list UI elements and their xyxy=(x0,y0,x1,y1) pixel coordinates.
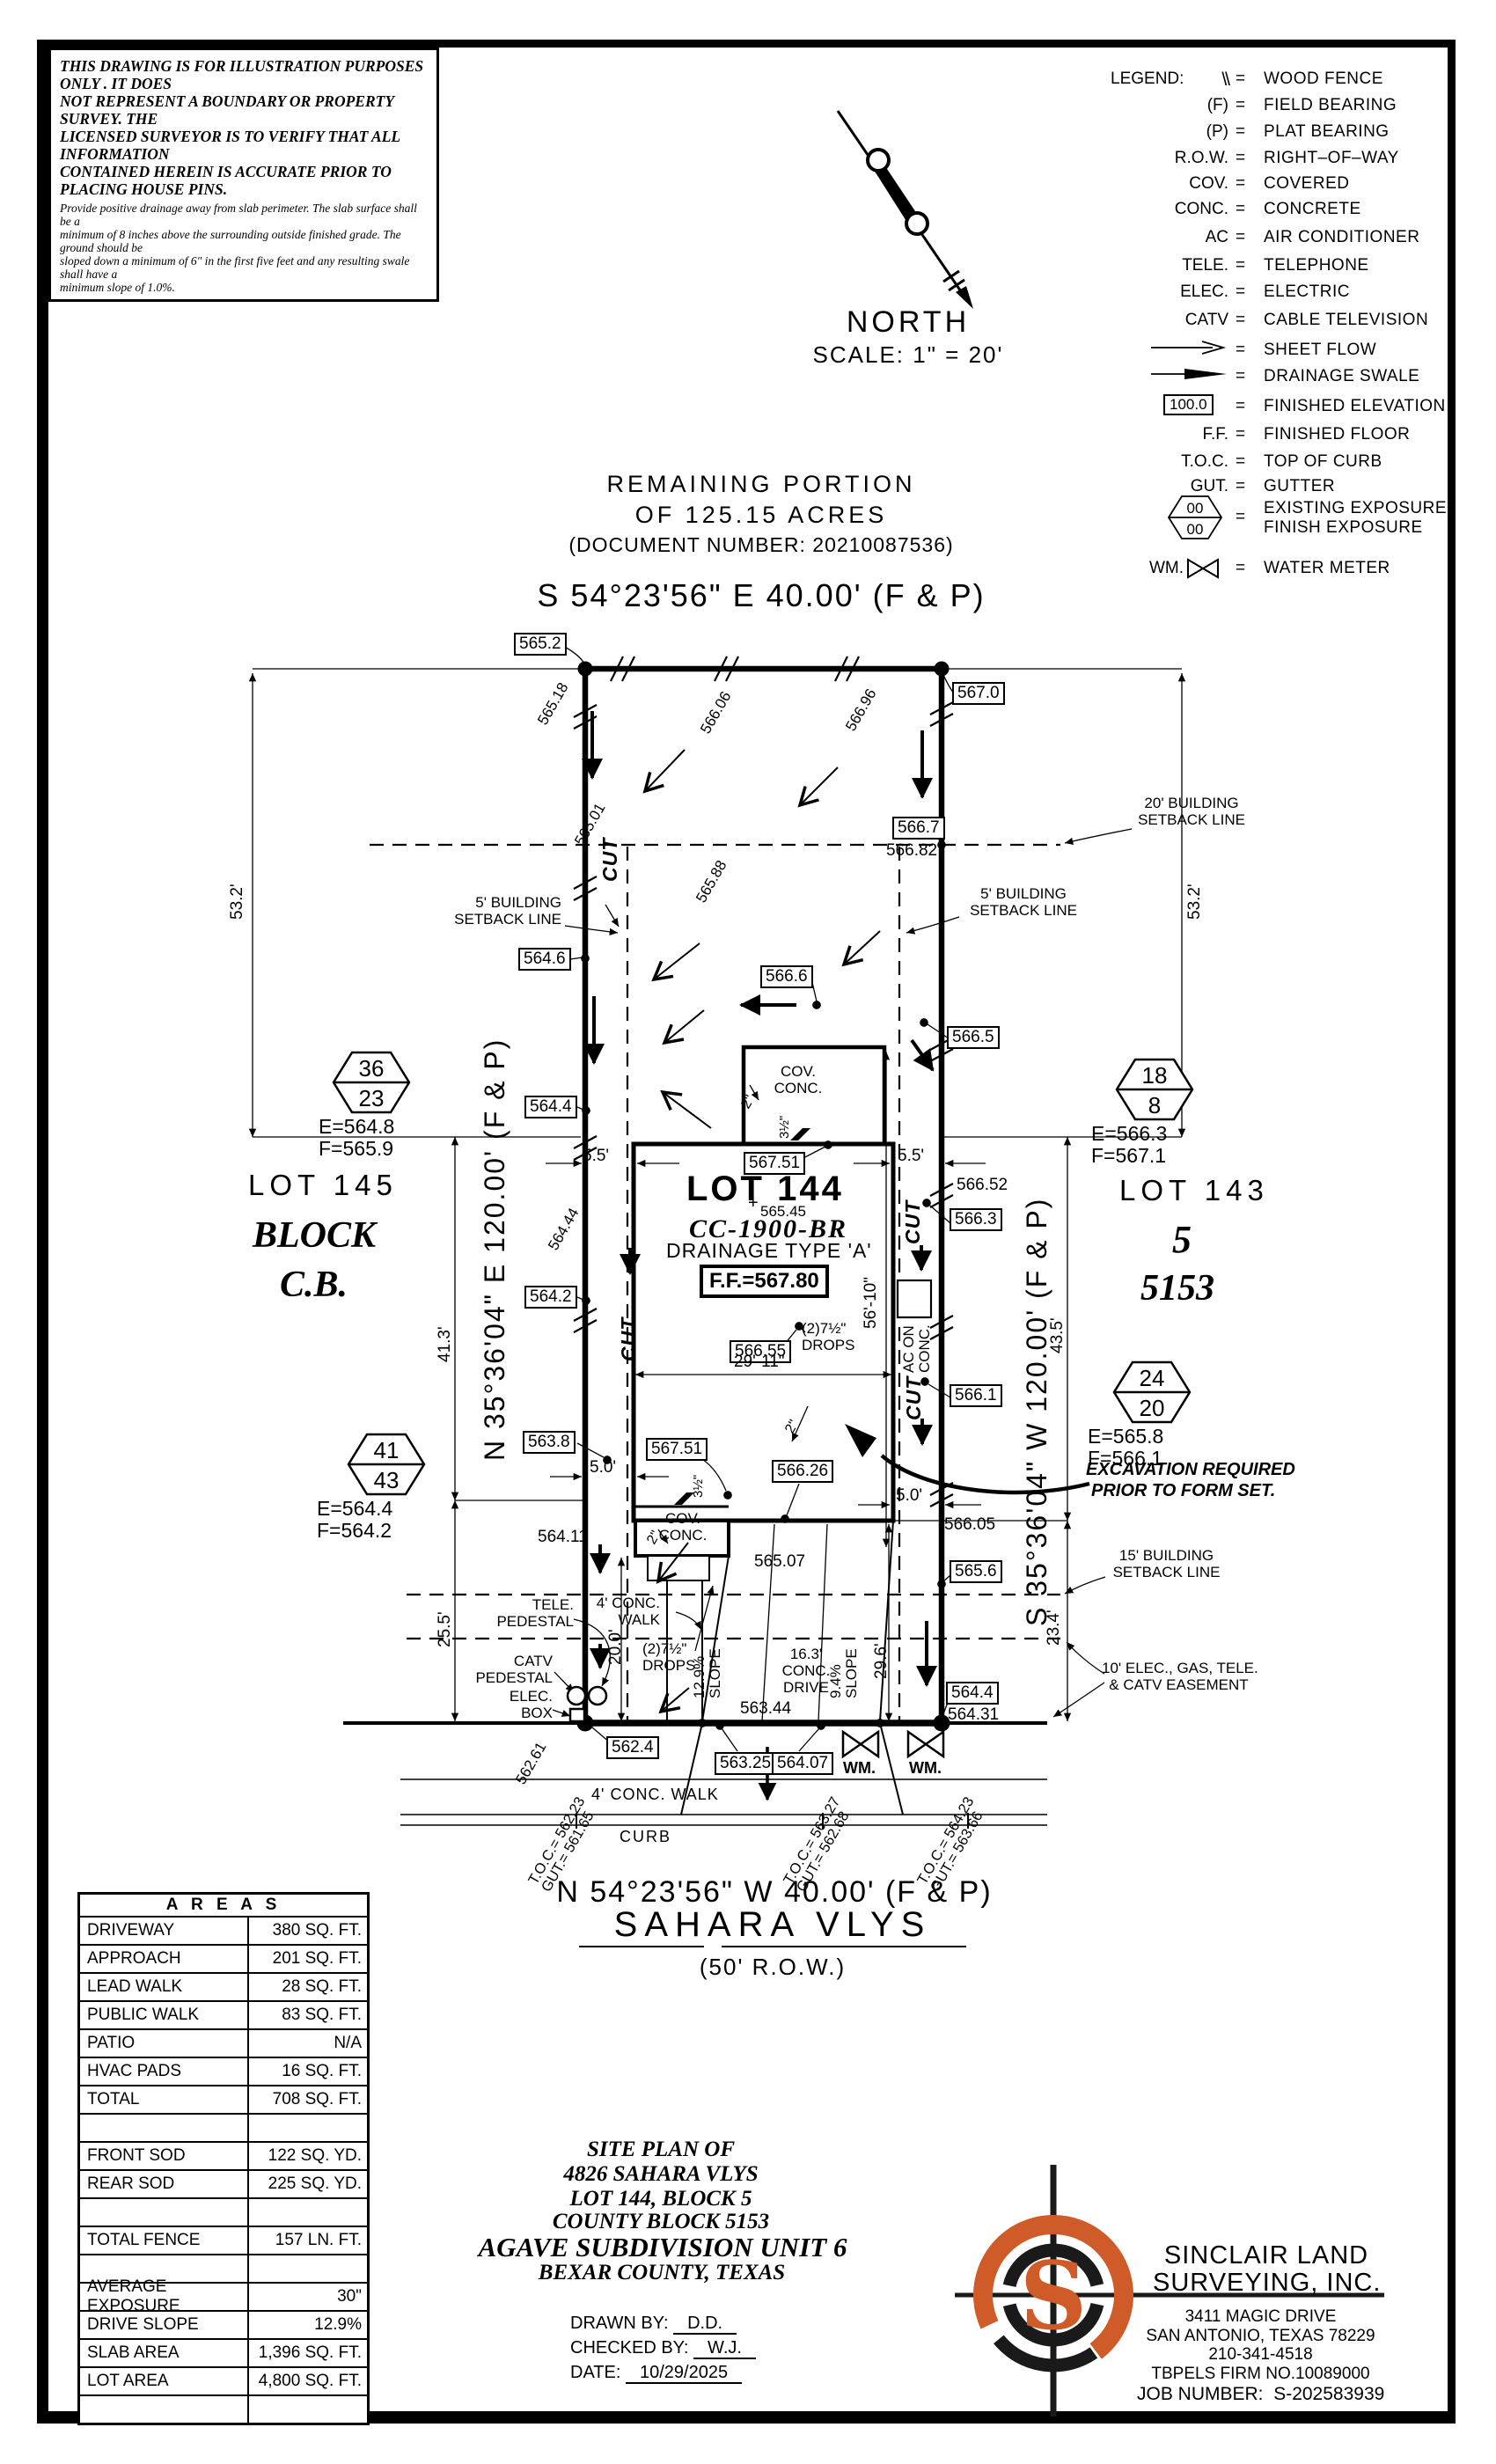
legend-eq: = xyxy=(1236,70,1245,88)
date-row: DATE: 10/29/2025 xyxy=(570,2364,742,2382)
row-label: DRIVE SLOPE xyxy=(80,2315,247,2335)
table-row: LOT AREA4,800 SQ. FT. xyxy=(80,2366,367,2394)
elec-line1: ELEC. xyxy=(489,1688,553,1705)
legend-desc: RIGHT–OF–WAY xyxy=(1264,150,1399,167)
exposure-e: E=564.8 xyxy=(319,1116,394,1137)
title-subdivision: AGAVE SUBDIVISION UNIT 6 xyxy=(479,2233,847,2262)
legend-sym: T.O.C. xyxy=(1116,453,1228,471)
legend-sym: R.O.W. xyxy=(1116,150,1228,167)
elevation: 566.82 xyxy=(886,842,937,860)
firm-name-1: SINCLAIR LAND xyxy=(1153,2242,1380,2270)
disclaimer-note: sloped down a minimum of 6" in the first… xyxy=(60,254,428,281)
row-value: 28 SQ. FT. xyxy=(247,1974,367,2000)
drops-callout-low: (2)7½"DROPS xyxy=(642,1640,695,1674)
table-row: AVERAGE EXPOSURE30" xyxy=(80,2282,367,2310)
legend-desc: FINISHED FLOOR xyxy=(1264,426,1410,444)
row-value xyxy=(247,2199,367,2226)
elevation-box: 567.51 xyxy=(646,1438,708,1461)
elevation-box: 566.1 xyxy=(950,1384,1002,1407)
drainage-type: DRAINAGE TYPE 'A' xyxy=(666,1240,872,1261)
drawn-by-value: D.D. xyxy=(673,2314,737,2335)
drops-word: DROPS xyxy=(642,1657,695,1674)
title-county-block: COUNTY BLOCK 5153 xyxy=(553,2211,769,2234)
setback-line1: 5' BUILDING xyxy=(438,894,561,911)
house-width-dim: 29'-11" xyxy=(734,1353,785,1371)
legend-eq: = xyxy=(1236,283,1245,301)
elevation-box: 567.0 xyxy=(952,682,1005,705)
elevation-box: 564.07 xyxy=(772,1752,833,1775)
setback-line2: SETBACK LINE xyxy=(1133,811,1250,828)
title-lot-block: LOT 144, BLOCK 5 xyxy=(570,2188,752,2211)
row-label: REAR SOD xyxy=(80,2174,247,2194)
dim-23-4: 23.4' xyxy=(1045,1610,1063,1646)
exposure-existing: 18 xyxy=(1142,1062,1168,1089)
table-row: TOTAL708 SQ. FT. xyxy=(80,2085,367,2113)
drops-word: DROPS xyxy=(802,1337,854,1353)
dim-20-0: 20.0' xyxy=(607,1629,625,1665)
elevation-box: 563.8 xyxy=(523,1431,576,1454)
slope-word: SLOPE xyxy=(844,1648,860,1698)
legend-desc: DRAINAGE SWALE xyxy=(1264,368,1419,385)
row-value: 4,800 SQ. FT. xyxy=(247,2368,367,2394)
drop-3half: 3½" xyxy=(778,1116,792,1139)
legend-sym: (F) xyxy=(1116,97,1228,114)
remaining-portion-1: REMAINING PORTION xyxy=(606,472,915,497)
exposure-e: E=565.8 xyxy=(1088,1426,1163,1447)
elevation-box: 566.7 xyxy=(892,817,945,840)
easement-label: 10' ELEC., GAS, TELE.& CATV EASEMENT xyxy=(1102,1660,1256,1693)
drawn-by-row: DRAWN BY: D.D. xyxy=(570,2314,737,2333)
elevation-box: 564.6 xyxy=(518,948,571,971)
north-arrow-icon xyxy=(827,104,994,315)
table-row: DRIVEWAY380 SQ. FT. xyxy=(80,1916,367,1944)
disclaimer-note: minimum of 8 inches above the surroundin… xyxy=(60,228,428,254)
elevation-box: 564.4 xyxy=(524,1096,577,1118)
legend-desc: SHEET FLOW xyxy=(1264,341,1376,359)
drive-width: 16.3' xyxy=(778,1646,834,1662)
exposure-bottom: 00 xyxy=(1187,521,1204,538)
setback-line2: SETBACK LINE xyxy=(438,911,561,928)
cov-label: COV. xyxy=(651,1510,715,1527)
legend-eq: = xyxy=(1236,453,1245,471)
legend-eq: = xyxy=(1236,398,1245,415)
north-label: NORTH xyxy=(847,306,970,338)
row-label: DRIVEWAY xyxy=(80,1921,247,1940)
firm-phone: 210-341-4518 xyxy=(1135,2345,1386,2365)
drainage-swale-icon xyxy=(1149,366,1228,382)
legend-eq: = xyxy=(1236,312,1245,329)
adjacent-block-right: 5 xyxy=(1172,1220,1192,1261)
elevation-box: 566.26 xyxy=(772,1460,833,1483)
water-meter-icon xyxy=(1186,558,1220,579)
elevation: 564.31 xyxy=(948,1706,999,1724)
row-value: 83 SQ. FT. xyxy=(247,2002,367,2028)
exposure-existing: 36 xyxy=(359,1055,385,1082)
row-label: PATIO xyxy=(80,2034,247,2053)
disclaimer-line: CONTAINED HEREIN IS ACCURATE PRIOR TO PL… xyxy=(60,163,428,198)
legend-sym: AC xyxy=(1116,229,1228,246)
elevation: 566.05 xyxy=(944,1516,995,1534)
finished-floor-elevation: F.F.=567.80 xyxy=(700,1265,829,1298)
dim-25-5: 25.5' xyxy=(436,1611,454,1647)
finished-elevation-box: 100.0 xyxy=(1163,394,1214,415)
legend-eq: = xyxy=(1236,150,1245,167)
table-row: PATION/A xyxy=(80,2028,367,2057)
legend-eq: = xyxy=(1236,123,1245,141)
elevation-box: 566.3 xyxy=(950,1208,1002,1231)
firm-name: SINCLAIR LAND SURVEYING, INC. xyxy=(1153,2242,1380,2297)
adjacent-lot-right: LOT 143 xyxy=(1119,1176,1269,1206)
elevation-box: 566.6 xyxy=(760,965,813,988)
legend-desc: EXISTING EXPOSURE xyxy=(1264,500,1447,517)
dim-5-5: 5.5' xyxy=(583,1148,609,1165)
drive-callout: 16.3' CONC. DRIVE xyxy=(778,1646,834,1696)
dim-53-2: 53.2' xyxy=(1186,884,1204,920)
setback-line2: SETBACK LINE xyxy=(962,902,1085,919)
table-row: APPROACH201 SQ. FT. xyxy=(80,1944,367,1972)
row-label: LOT AREA xyxy=(80,2372,247,2391)
firm-address: 3411 MAGIC DRIVE SAN ANTONIO, TEXAS 7822… xyxy=(1135,2307,1386,2383)
exposure-marker-24-20: 24 20 xyxy=(1111,1357,1192,1427)
table-row: PUBLIC WALK83 SQ. FT. xyxy=(80,2000,367,2028)
row-value xyxy=(247,2255,367,2282)
catv-line2: PEDESTAL xyxy=(466,1669,553,1686)
legend-eq: = xyxy=(1236,560,1245,577)
elevation-box: 566.5 xyxy=(947,1026,1000,1049)
water-meter-label: WM. xyxy=(843,1760,876,1777)
elevation-box: 564.4 xyxy=(946,1682,999,1705)
house-depth-dim: 56'-10" xyxy=(862,1277,880,1329)
slope-word: SLOPE xyxy=(708,1648,723,1698)
legend-desc: ELECTRIC xyxy=(1264,283,1350,301)
disclaimer-note: minimum slope of 1.0%. xyxy=(60,281,428,294)
disclaimer-line: LICENSED SURVEYOR IS TO VERIFY THAT ALL … xyxy=(60,128,428,163)
legend-sym: COV. xyxy=(1116,175,1228,193)
legend-sym: CONC. xyxy=(1116,201,1228,218)
elevation-box: 565.6 xyxy=(950,1560,1002,1583)
table-row: HVAC PADS16 SQ. FT. xyxy=(80,2057,367,2085)
date-label: DATE: xyxy=(570,2363,620,2382)
disclaimer-line: NOT REPRESENT A BOUNDARY OR PROPERTY SUR… xyxy=(60,92,428,128)
firm-tbpels: TBPELS FIRM NO.10089000 xyxy=(1135,2365,1386,2384)
table-row: FRONT SOD122 SQ. YD. xyxy=(80,2141,367,2169)
legend-desc: CONCRETE xyxy=(1264,201,1361,218)
job-number-label: JOB NUMBER: xyxy=(1137,2384,1264,2404)
exposure-finish: 20 xyxy=(1140,1395,1165,1421)
exposure-marker-36-23: 36 23 xyxy=(331,1047,412,1118)
legend-eq: = xyxy=(1236,426,1245,444)
drops-callout: (2)7½"DROPS xyxy=(802,1320,854,1353)
dim-41-3: 41.3' xyxy=(436,1326,454,1362)
elevation-box: 563.25 xyxy=(715,1752,776,1775)
drive-slope-right: 9.4%SLOPE xyxy=(828,1648,860,1698)
setback-line1: 5' BUILDING xyxy=(962,885,1085,902)
legend-desc: FIELD BEARING xyxy=(1264,97,1397,114)
legend-sym: ELEC. xyxy=(1116,283,1228,301)
job-number-value: S-202583939 xyxy=(1273,2384,1384,2404)
legend-desc: FINISHED ELEVATION xyxy=(1264,398,1446,415)
row-value: 201 SQ. FT. xyxy=(247,1946,367,1972)
exposure-top: 00 xyxy=(1187,500,1204,517)
row-value: 225 SQ. YD. xyxy=(247,2171,367,2197)
row-value xyxy=(247,2396,367,2423)
lead-walk-label: 4' CONC.WALK xyxy=(568,1595,660,1628)
cut-label: CUT xyxy=(599,838,620,882)
street-row: (50' R.O.W.) xyxy=(700,1955,846,1980)
legend-desc: WOOD FENCE xyxy=(1264,70,1383,88)
excavation-note-2: PRIOR TO FORM SET. xyxy=(1091,1482,1275,1500)
checked-by-value: W.J. xyxy=(693,2338,756,2359)
drops-qty: (2)7½" xyxy=(802,1320,854,1337)
drawn-by-label: DRAWN BY: xyxy=(570,2314,669,2333)
drops-qty: (2)7½" xyxy=(642,1640,695,1657)
areas-table: A R E A S DRIVEWAY380 SQ. FT. APPROACH20… xyxy=(77,1892,370,2425)
legend-desc: AIR CONDITIONER xyxy=(1264,229,1419,246)
areas-title: A R E A S xyxy=(80,1895,367,1916)
adjacent-lot-left: LOT 145 xyxy=(248,1170,398,1201)
slope-pct: 9.4% xyxy=(828,1648,844,1698)
legend-eq: = xyxy=(1236,509,1245,526)
bearing-north-line: S 54°23'56" E 40.00' (F & P) xyxy=(537,579,985,612)
row-label: AVERAGE EXPOSURE xyxy=(80,2277,247,2316)
legend-eq: = xyxy=(1236,341,1245,359)
row-value xyxy=(247,2115,367,2141)
catv-pedestal-label: CATVPEDESTAL xyxy=(466,1653,553,1686)
adjacent-block-left: BLOCK xyxy=(253,1216,376,1256)
table-row xyxy=(80,2113,367,2141)
site-plan-sheet: THIS DRAWING IS FOR ILLUSTRATION PURPOSE… xyxy=(0,0,1496,2464)
document-number: (DOCUMENT NUMBER: 20210087536) xyxy=(568,534,953,555)
legend-sym: F.F. xyxy=(1116,426,1228,444)
row-value: N/A xyxy=(247,2030,367,2057)
exposure-marker-41-43: 41 43 xyxy=(346,1429,427,1500)
ac-line2: CONC. xyxy=(917,1324,933,1373)
checked-by-row: CHECKED BY: W.J. xyxy=(570,2339,756,2358)
row-label: HVAC PADS xyxy=(80,2062,247,2081)
water-meter-label: WM. xyxy=(909,1760,942,1777)
elec-line2: BOX xyxy=(489,1705,553,1721)
elevation-box: 562.4 xyxy=(606,1736,659,1759)
setback-20-label: 20' BUILDINGSETBACK LINE xyxy=(1133,795,1250,828)
drive-conc: CONC. xyxy=(778,1662,834,1679)
sheet-flow-icon xyxy=(1149,340,1228,356)
elevation: 563.44 xyxy=(740,1700,791,1718)
scale-label: SCALE: 1" = 20' xyxy=(813,343,1004,368)
exposure-f: F=564.2 xyxy=(317,1520,392,1541)
exposure-existing: 41 xyxy=(374,1437,400,1463)
disclaimer-box: THIS DRAWING IS FOR ILLUSTRATION PURPOSE… xyxy=(48,48,439,302)
legend-desc: TOP OF CURB xyxy=(1264,453,1382,471)
exposure-finish: 8 xyxy=(1148,1092,1161,1118)
legend-eq: = xyxy=(1236,97,1245,114)
legend-desc: COVERED xyxy=(1264,175,1349,193)
setback-5-right-label: 5' BUILDINGSETBACK LINE xyxy=(962,885,1085,919)
tele-pedestal-label: TELE.PEDESTAL xyxy=(489,1596,574,1630)
row-value: 30" xyxy=(247,2284,367,2310)
conc-label: CONC. xyxy=(762,1080,834,1096)
dim-5-5: 5.5' xyxy=(898,1148,924,1165)
setback-line1: 20' BUILDING xyxy=(1133,795,1250,811)
exposure-hexagon-icon: 00 00 xyxy=(1167,493,1223,542)
catv-line1: CATV xyxy=(466,1653,553,1669)
row-label: SLAB AREA xyxy=(80,2343,247,2363)
exposure-e: E=566.3 xyxy=(1091,1123,1167,1144)
legend-sym-wood-fence: \\ xyxy=(1116,70,1228,90)
easement-line2: & CATV EASEMENT xyxy=(1102,1676,1256,1693)
row-value: 157 LN. FT. xyxy=(247,2227,367,2254)
title-line: SITE PLAN OF xyxy=(441,2138,881,2162)
setback-5-left-label: 5' BUILDINGSETBACK LINE xyxy=(438,894,561,928)
legend-eq: = xyxy=(1236,478,1245,495)
cut-label: CUT xyxy=(618,1317,639,1361)
logo-letter-s: S xyxy=(1020,2240,1088,2350)
row-label: TOTAL xyxy=(80,2090,247,2109)
dim-5-0: 5.0' xyxy=(896,1487,922,1505)
firm-city: SAN ANTONIO, TEXAS 78229 xyxy=(1135,2327,1386,2346)
dim-53-2: 53.2' xyxy=(229,884,246,920)
row-value: 122 SQ. YD. xyxy=(247,2143,367,2169)
easement-line1: 10' ELEC., GAS, TELE. xyxy=(1102,1660,1256,1676)
public-walk-label: 4' CONC. WALK xyxy=(591,1786,719,1803)
cut-label: CUT xyxy=(902,1200,923,1244)
date-value: 10/29/2025 xyxy=(626,2363,742,2384)
exposure-finish: 43 xyxy=(374,1467,400,1493)
bearing-east-line: S 35°36'04" W 120.00' (F & P) xyxy=(1023,1198,1052,1626)
row-label: APPROACH xyxy=(80,1949,247,1969)
cov-label: COV. xyxy=(762,1063,834,1080)
checked-by-label: CHECKED BY: xyxy=(570,2338,688,2358)
elevation: 565.07 xyxy=(754,1553,805,1571)
legend-desc: FINISH EXPOSURE xyxy=(1264,519,1423,537)
table-row: LEAD WALK28 SQ. FT. xyxy=(80,1972,367,2000)
firm-name-2: SURVEYING, INC. xyxy=(1153,2270,1380,2297)
disclaimer-line: THIS DRAWING IS FOR ILLUSTRATION PURPOSE… xyxy=(60,57,428,92)
legend-sym: TELE. xyxy=(1116,257,1228,275)
title-county: BEXAR COUNTY, TEXAS xyxy=(539,2262,785,2285)
elevation: 566.52 xyxy=(957,1177,1008,1194)
row-label: TOTAL FENCE xyxy=(80,2231,247,2250)
legend-desc: CABLE TELEVISION xyxy=(1264,312,1428,329)
exposure-f: F=565.9 xyxy=(319,1138,393,1159)
table-row: REAR SOD225 SQ. YD. xyxy=(80,2169,367,2197)
row-value: 12.9% xyxy=(247,2312,367,2338)
table-row xyxy=(80,2394,367,2423)
ac-on-conc: AC ONCONC. xyxy=(901,1324,933,1373)
elevation-box: 564.2 xyxy=(524,1286,577,1309)
disclaimer-note: Provide positive drainage away from slab… xyxy=(60,202,428,228)
legend-sym-wm: WM. xyxy=(1149,560,1184,577)
adjacent-cb-right: 5153 xyxy=(1140,1269,1214,1309)
exposure-existing: 24 xyxy=(1140,1365,1165,1391)
adjacent-cb-left: C.B. xyxy=(280,1265,348,1305)
row-label: FRONT SOD xyxy=(80,2146,247,2166)
setback-line1: 15' BUILDING xyxy=(1107,1547,1226,1564)
table-row: TOTAL FENCE157 LN. FT. xyxy=(80,2226,367,2254)
drive-word: DRIVE xyxy=(778,1679,834,1696)
legend-desc: TELEPHONE xyxy=(1264,257,1369,275)
dim-43-5: 43.5' xyxy=(1049,1317,1067,1353)
walk-line1: 4' CONC. xyxy=(568,1595,660,1611)
elevation-box: 565.2 xyxy=(514,633,567,656)
row-label: LEAD WALK xyxy=(80,1977,247,1997)
firm-street: 3411 MAGIC DRIVE xyxy=(1135,2307,1386,2327)
legend-eq: = xyxy=(1236,257,1245,275)
setback-15-label: 15' BUILDINGSETBACK LINE xyxy=(1107,1547,1226,1580)
covered-concrete-rear: COV.CONC. xyxy=(762,1063,834,1096)
job-number-row: JOB NUMBER: S-202583939 xyxy=(1137,2385,1384,2404)
row-value: 1,396 SQ. FT. xyxy=(247,2340,367,2366)
exposure-e: E=564.4 xyxy=(317,1498,392,1519)
legend-eq: = xyxy=(1236,201,1245,218)
elevation: 564.11 xyxy=(538,1529,588,1546)
dim-5-0: 5.0' xyxy=(590,1459,616,1477)
walk-line2: WALK xyxy=(568,1611,660,1628)
legend-desc: WATER METER xyxy=(1264,560,1390,577)
curb-label: CURB xyxy=(620,1829,671,1845)
tele-line2: PEDESTAL xyxy=(489,1613,574,1630)
row-value: 16 SQ. FT. xyxy=(247,2058,367,2085)
bearing-west-line: N 35°36'04" E 120.00' (F & P) xyxy=(480,1038,510,1461)
legend-eq: = xyxy=(1236,175,1245,193)
drop-3half: 3½" xyxy=(692,1475,706,1498)
elec-box-label: ELEC.BOX xyxy=(489,1688,553,1721)
title-address: 4826 SAHARA VLYS xyxy=(563,2163,758,2187)
spot-plus: + xyxy=(748,1194,759,1213)
row-label: PUBLIC WALK xyxy=(80,2006,247,2025)
legend-sym: CATV xyxy=(1116,312,1228,329)
legend-eq: = xyxy=(1236,229,1245,246)
drive-slope-left: 12.9%SLOPE xyxy=(692,1648,723,1698)
row-value: 708 SQ. FT. xyxy=(247,2086,367,2113)
setback-line2: SETBACK LINE xyxy=(1107,1564,1226,1580)
exposure-marker-18-8: 18 8 xyxy=(1114,1054,1195,1125)
dim-29-6: 29.6' xyxy=(873,1643,891,1679)
legend-desc: PLAT BEARING xyxy=(1264,123,1390,141)
legend-sym: (P) xyxy=(1116,123,1228,141)
table-row xyxy=(80,2197,367,2226)
tele-line1: TELE. xyxy=(489,1596,574,1613)
cut-label: CUT xyxy=(903,1376,924,1420)
legend-desc: GUTTER xyxy=(1264,478,1335,495)
legend-eq: = xyxy=(1236,368,1245,385)
exposure-f: F=567.1 xyxy=(1091,1145,1166,1166)
street-name: SAHARA VLYS xyxy=(614,1906,932,1943)
bearing-south-line: N 54°23'56" W 40.00' (F & P) xyxy=(556,1876,992,1908)
row-value: 380 SQ. FT. xyxy=(247,1918,367,1944)
ac-line1: AC ON xyxy=(901,1324,917,1373)
table-row: SLAB AREA1,396 SQ. FT. xyxy=(80,2338,367,2366)
excavation-note-1: EXCAVATION REQUIRED xyxy=(1086,1461,1295,1479)
exposure-finish: 23 xyxy=(359,1085,385,1111)
remaining-portion-2: OF 125.15 ACRES xyxy=(635,502,888,528)
